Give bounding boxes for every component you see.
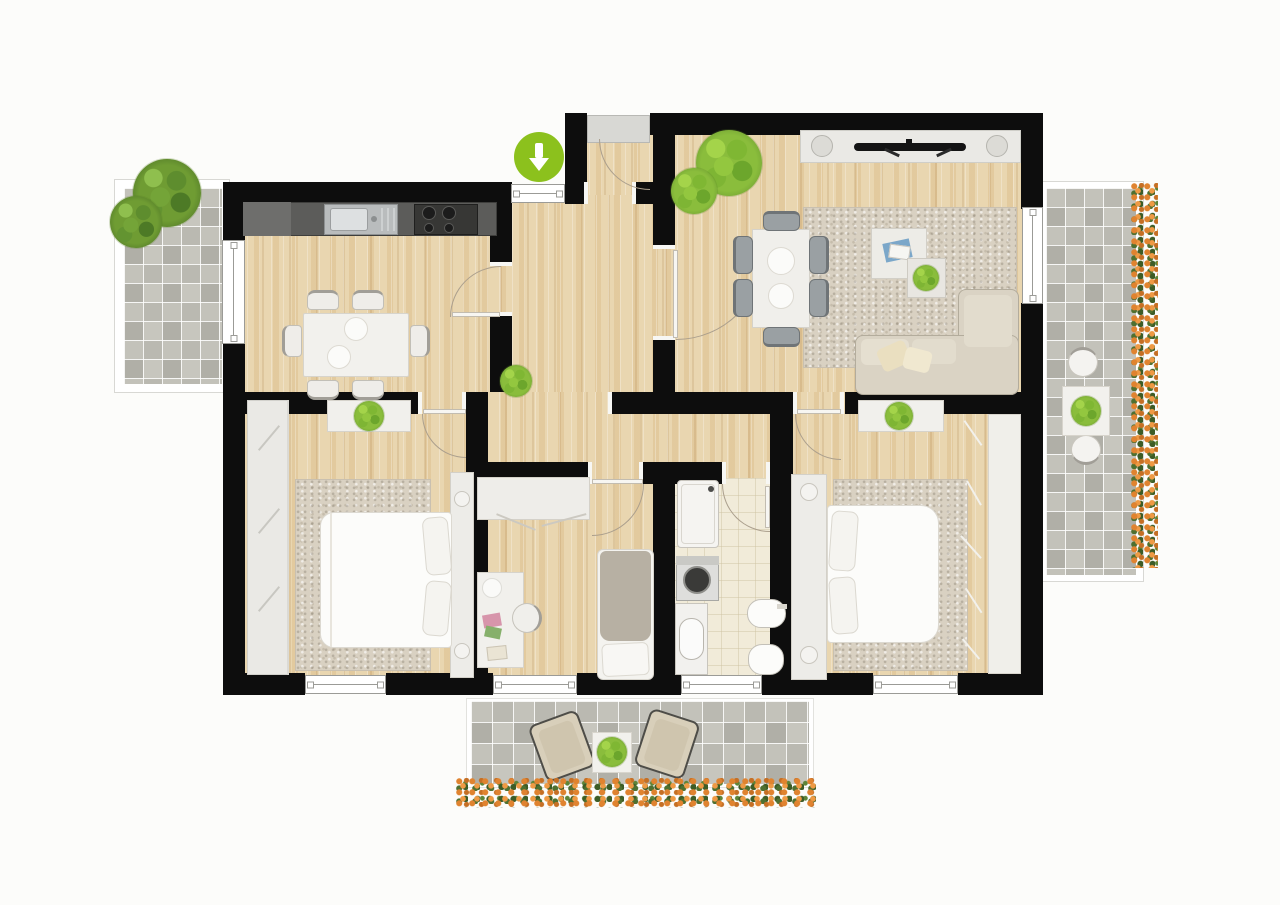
kitchen-chair	[352, 290, 384, 310]
door-jamb	[608, 392, 612, 414]
living-chair	[809, 279, 829, 317]
toilet	[748, 644, 784, 675]
table-plate	[768, 283, 794, 309]
shower-inner-line	[681, 484, 715, 544]
door-jamb	[418, 392, 422, 414]
kitchen-fridge-panel	[243, 202, 291, 236]
floor-plan	[0, 0, 1280, 905]
door-jamb	[722, 462, 726, 484]
wall-right-upper	[1021, 113, 1043, 209]
sink-drainboard-line	[387, 208, 389, 231]
wall-bottom-5	[958, 673, 1043, 695]
door-leaf-bathroom	[765, 486, 770, 528]
vanity-basin	[679, 618, 704, 660]
wardrobe-bedroom-left	[247, 400, 289, 675]
door-jamb	[653, 245, 675, 249]
desk-plate	[482, 578, 502, 598]
wall-bottom-2	[386, 673, 493, 695]
wardrobe-front-line	[287, 400, 289, 675]
wall-left-upper	[223, 182, 245, 242]
cooktop-burner	[422, 206, 436, 220]
plant-hallway	[500, 365, 532, 397]
cooktop-burner	[442, 206, 456, 220]
kitchen-sink-basin	[330, 208, 368, 231]
kitchen-chair	[410, 325, 430, 357]
wall-living-left-b	[653, 340, 675, 398]
door-jamb	[584, 182, 588, 204]
living-table	[752, 229, 810, 328]
door-jamb	[766, 462, 770, 484]
plant-terrace-table	[597, 737, 627, 767]
kitchen-chair	[307, 380, 339, 400]
window-bathroom	[681, 675, 762, 694]
bed-pillow	[422, 580, 453, 637]
tv-speaker-right	[986, 135, 1008, 157]
kitchen-chair	[282, 325, 302, 357]
living-chair	[733, 279, 753, 317]
desk-item-paper	[486, 645, 507, 661]
window-bedroom-right	[873, 675, 958, 694]
door-leaf-office	[592, 479, 643, 484]
right-balcony-tiles	[1046, 188, 1136, 575]
plant-coffee-table	[913, 265, 939, 291]
wall-bathroom-right	[770, 414, 793, 675]
flower-bed-right-balcony	[1131, 183, 1158, 568]
kitchen-chair	[307, 290, 339, 310]
washer-door	[683, 566, 711, 594]
plant-living-small	[671, 168, 717, 214]
entrance-arrow-stem	[535, 143, 543, 158]
wall-divider-central	[612, 392, 793, 414]
bush-left-balcony-small	[110, 196, 162, 248]
office-shelf	[477, 477, 590, 520]
balcony-chair-bottom	[1071, 435, 1101, 465]
table-plate	[344, 317, 368, 341]
wall-top-kitchen	[225, 182, 512, 204]
balcony-chair-top	[1068, 347, 1098, 377]
office-chair	[512, 603, 542, 633]
shower-head-dot	[708, 486, 714, 492]
bed-pillow	[828, 576, 859, 635]
bed-pillow	[828, 510, 859, 572]
plant-sideboard-left	[354, 401, 384, 431]
window-balcony-left-door	[222, 240, 245, 344]
nightstand-lamp	[454, 491, 470, 507]
living-chair	[763, 327, 800, 347]
bidet-tap	[777, 604, 787, 609]
closet-panel-right	[988, 414, 1021, 674]
door-jamb	[653, 336, 675, 340]
wall-living-left-a	[653, 113, 675, 249]
table-plate	[767, 247, 795, 275]
door-leaf-bedroom-left	[423, 409, 466, 414]
nightstand-lamp	[454, 643, 470, 659]
kitchen-sink-faucet	[371, 216, 377, 222]
entrance-arrow-head	[529, 158, 549, 171]
door-jamb	[490, 262, 512, 266]
kitchen-chair	[352, 380, 384, 400]
bed-pillow	[422, 516, 453, 576]
plant-balcony-table	[1071, 396, 1101, 426]
tv-speaker-left	[811, 135, 833, 157]
nightstand-lamp	[800, 483, 818, 501]
door-leaf-living	[673, 250, 678, 338]
door-leaf-kitchen	[452, 312, 500, 317]
duvet-fold-line	[330, 513, 332, 647]
table-plate	[327, 345, 351, 369]
office-bed-duvet	[600, 551, 651, 641]
window-bedroom-left	[305, 675, 386, 694]
living-chair	[763, 211, 800, 231]
living-chair	[733, 236, 753, 274]
window-living-right	[1022, 207, 1043, 304]
office-bed-pillow	[601, 642, 650, 677]
window-entry-side	[511, 184, 565, 203]
tv-mount-nub	[906, 139, 912, 144]
window-office	[493, 675, 577, 694]
washer-top-panel	[676, 556, 719, 565]
wall-right-lower	[1021, 303, 1043, 695]
wall-bathroom-left	[653, 462, 675, 675]
cooktop-burner	[424, 223, 434, 233]
sofa-cushion	[964, 295, 1012, 347]
nightstand-lamp	[800, 646, 818, 664]
cooktop-burner	[444, 223, 454, 233]
flower-bed-terrace	[456, 778, 817, 808]
door-leaf-bedroom-right	[797, 409, 841, 414]
plant-sideboard-right	[885, 402, 913, 430]
sink-drainboard-line	[381, 208, 383, 231]
living-chair	[809, 236, 829, 274]
sink-drainboard-line	[393, 208, 395, 231]
